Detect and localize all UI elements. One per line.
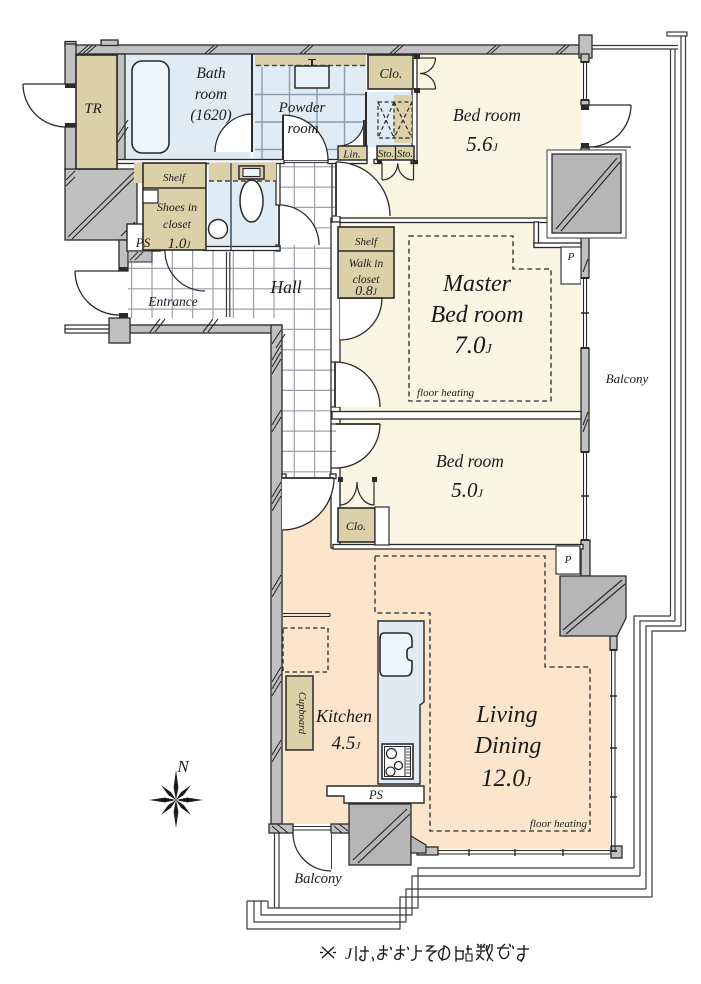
svg-text:J: J (345, 946, 353, 963)
svg-text:floor heating: floor heating (417, 387, 475, 399)
svg-text:TR: TR (84, 101, 102, 117)
svg-text:Kitchen: Kitchen (315, 706, 372, 726)
svg-text:Clo.: Clo. (380, 66, 403, 81)
svg-text:Bed room: Bed room (436, 451, 504, 471)
svg-text:Walk in: Walk in (349, 258, 384, 270)
svg-text:room: room (287, 121, 318, 137)
svg-text:Shelf: Shelf (163, 172, 187, 184)
svg-text:P: P (564, 554, 572, 566)
svg-text:Entrance: Entrance (147, 294, 198, 309)
svg-text:0.8J: 0.8J (355, 284, 378, 299)
svg-text:Balcony: Balcony (606, 371, 649, 386)
svg-text:PS: PS (368, 788, 384, 802)
svg-text:room: room (195, 86, 227, 103)
svg-text:Powder: Powder (278, 100, 326, 116)
svg-text:Lin.: Lin. (342, 149, 360, 161)
svg-text:Living: Living (475, 702, 537, 728)
svg-text:Clo.: Clo. (346, 519, 366, 533)
svg-text:Cupboard: Cupboard (296, 692, 307, 735)
svg-text:PS: PS (135, 235, 151, 250)
svg-text:Hall: Hall (269, 277, 301, 297)
svg-text:(1620): (1620) (190, 107, 231, 124)
svg-text:P: P (567, 251, 575, 263)
svg-text:floor heating: floor heating (530, 818, 588, 830)
svg-text:Bed room: Bed room (430, 302, 523, 328)
svg-text:12.0J: 12.0J (481, 765, 532, 792)
svg-text:Bath: Bath (196, 65, 226, 82)
svg-text:Balcony: Balcony (294, 871, 342, 887)
svg-text:Dining: Dining (474, 733, 542, 759)
svg-text:closet: closet (163, 217, 192, 231)
svg-text:Sto.: Sto. (378, 149, 394, 160)
svg-text:Sto.: Sto. (397, 149, 413, 160)
svg-text:Shelf: Shelf (355, 236, 379, 248)
svg-text:Shoes in: Shoes in (157, 200, 197, 214)
svg-text:Master: Master (442, 271, 512, 297)
svg-text:Bed room: Bed room (453, 105, 521, 125)
svg-text:N: N (176, 757, 190, 776)
